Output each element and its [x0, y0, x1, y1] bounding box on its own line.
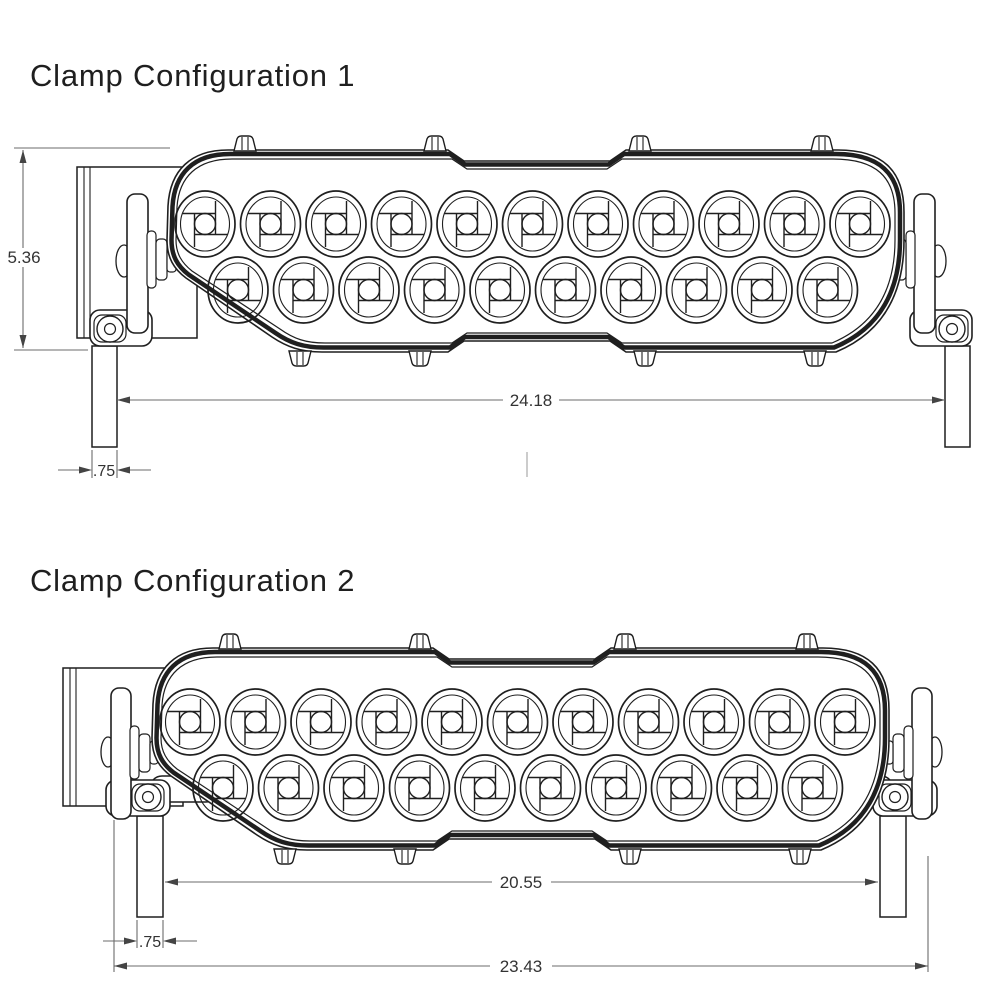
- dim-leg-width-label: .75: [93, 463, 115, 480]
- technical-drawing-page: Clamp Configuration 1 Clamp Configuratio…: [0, 0, 1000, 1000]
- dim-leg-width-label: .75: [139, 934, 161, 951]
- dim-overall-span-label: 23.43: [500, 957, 543, 976]
- dim-inner-span-label: 20.55: [500, 873, 543, 892]
- dim-height-label: 5.36: [7, 248, 40, 267]
- config2-drawing: 20.55 .75 23.43: [63, 634, 942, 976]
- drawing-canvas: 5.36 24.18 .75 20.55: [0, 0, 1000, 1000]
- config1-drawing: 5.36 24.18 .75: [2, 136, 972, 480]
- dim-span-label: 24.18: [510, 391, 553, 410]
